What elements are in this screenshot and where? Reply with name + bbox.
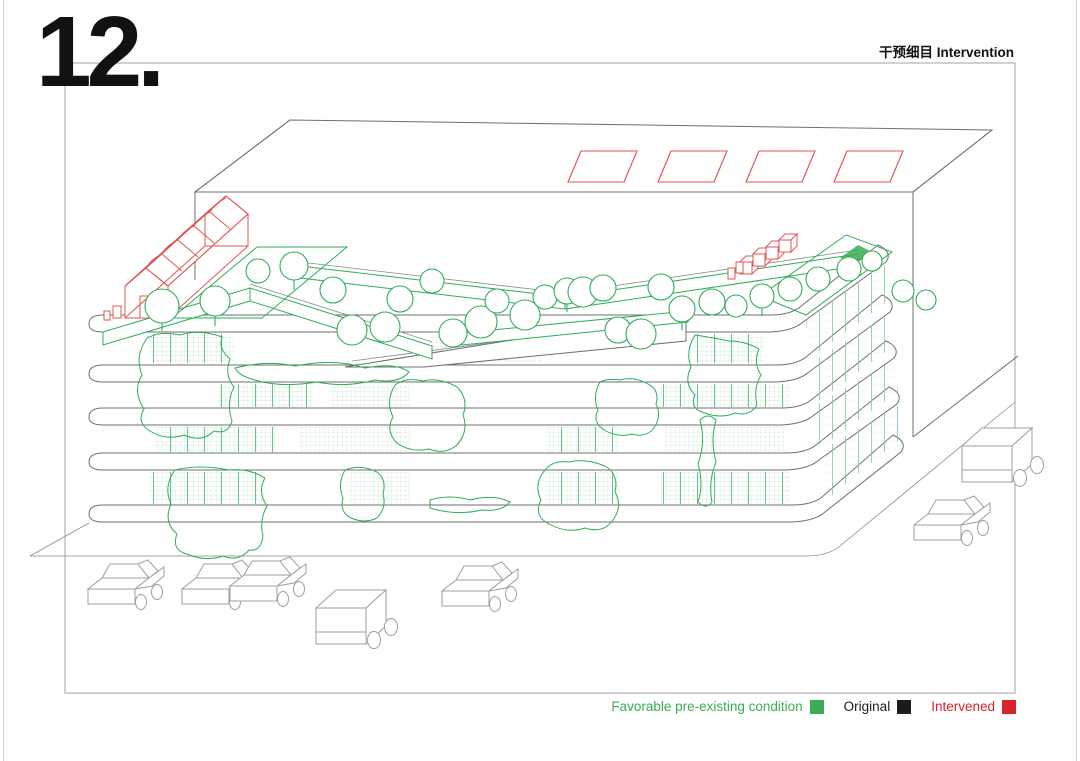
van	[962, 428, 1044, 487]
legend-label: Intervened	[931, 699, 995, 714]
sheet-title: 干预细目 Intervention	[879, 41, 1014, 61]
car	[442, 562, 518, 612]
legend: Favorable pre-existing condition Origina…	[611, 699, 1016, 714]
van	[316, 590, 398, 649]
axonometric-diagram	[0, 0, 1080, 761]
legend-swatch-black	[897, 700, 911, 714]
presentation-page: 12. 干预细目 Intervention Favorable pre-exis…	[0, 0, 1080, 761]
legend-item-original: Original	[844, 699, 912, 714]
car	[914, 496, 990, 546]
legend-label: Favorable pre-existing condition	[611, 699, 802, 714]
legend-item-intervened: Intervened	[931, 699, 1016, 714]
car	[88, 560, 164, 610]
legend-label: Original	[844, 699, 891, 714]
legend-item-favorable: Favorable pre-existing condition	[611, 699, 823, 714]
legend-swatch-green	[810, 700, 824, 714]
legend-swatch-red	[1002, 700, 1016, 714]
sheet-title-zh: 干预细目	[879, 45, 933, 60]
sheet-title-en: Intervention	[937, 45, 1014, 60]
page-number: 12.	[36, 2, 160, 102]
